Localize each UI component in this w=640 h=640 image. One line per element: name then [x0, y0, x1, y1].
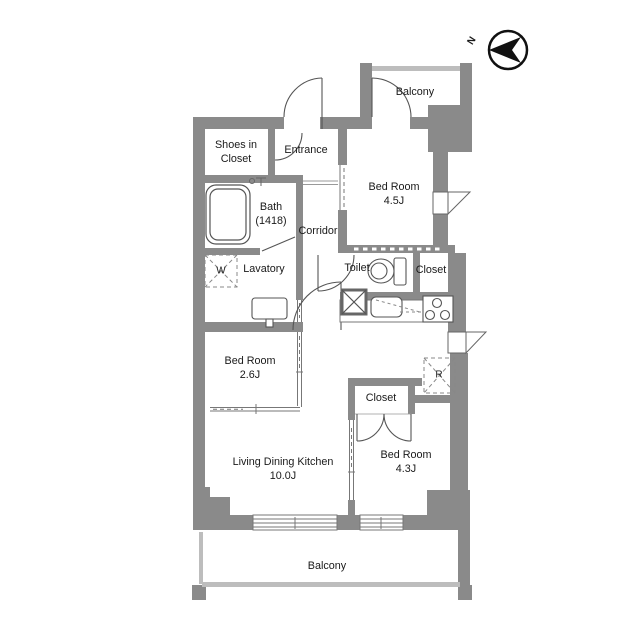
- balcony-bottom-label: Balcony: [308, 559, 346, 573]
- closet-bedroom-label: Closet: [366, 391, 397, 405]
- balcony-top-label: Balcony: [396, 85, 434, 99]
- bedroom-small-name: Bed Room: [224, 354, 275, 368]
- swing-doors: [262, 78, 411, 441]
- bedroom-small-label: Bed Room 2.6J: [224, 354, 275, 382]
- compass-icon: [489, 31, 527, 69]
- ldk-name: Living Dining Kitchen: [233, 455, 334, 469]
- stove-icon: [423, 296, 453, 322]
- refrigerator-space-label: R: [435, 369, 442, 382]
- entrance-label: Entrance: [284, 143, 327, 157]
- corridor-label: Corridor: [299, 224, 338, 238]
- bath-size: (1418): [255, 214, 286, 228]
- bedroom-south-name: Bed Room: [380, 448, 431, 462]
- floor-plan-drawing: [0, 0, 640, 640]
- bath-label: Bath (1418): [255, 200, 286, 228]
- bedroom-small-size: 2.6J: [224, 368, 275, 382]
- bedroom-main-name: Bed Room: [368, 180, 419, 194]
- closet-hall-label: Closet: [416, 263, 447, 277]
- ldk-size: 10.0J: [233, 469, 334, 483]
- toilet-icon: [368, 258, 406, 285]
- toilet-label: Toilet: [344, 261, 369, 275]
- bedroom-main-size: 4.5J: [368, 194, 419, 208]
- bath-name: Bath: [255, 200, 286, 214]
- floor-plan: Balcony Shoes in Closet Entrance Bath (1…: [0, 0, 640, 640]
- lavatory-label: Lavatory: [243, 262, 284, 276]
- washer-space-label: W: [216, 265, 225, 278]
- sliding-windows: [253, 515, 403, 530]
- pipe-shaft-box: [342, 290, 366, 314]
- shoes-in-closet-line1: Shoes in: [215, 138, 257, 152]
- bathtub-icon: [206, 185, 250, 244]
- shoes-in-closet-line2: Closet: [215, 152, 257, 166]
- kitchen-sink-icon: [371, 297, 402, 317]
- bedroom-south-label: Bed Room 4.3J: [380, 448, 431, 476]
- entrance-step: [303, 181, 338, 185]
- bedroom-south-size: 4.3J: [380, 462, 431, 476]
- ldk-label: Living Dining Kitchen 10.0J: [233, 455, 334, 483]
- shoes-in-closet-label: Shoes in Closet: [215, 138, 257, 166]
- bedroom-main-label: Bed Room 4.5J: [368, 180, 419, 208]
